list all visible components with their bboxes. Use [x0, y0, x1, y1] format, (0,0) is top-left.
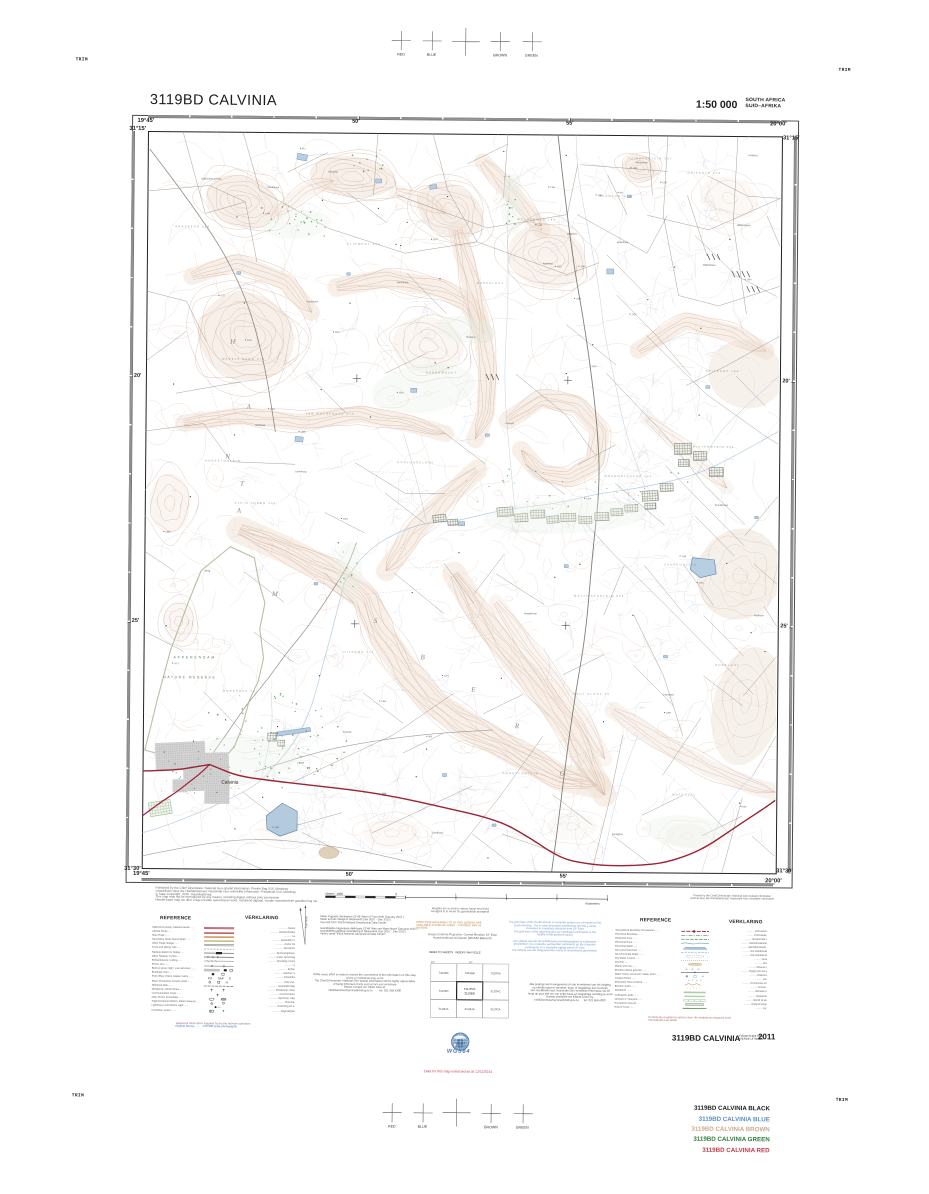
svg-text:1055: 1055 [581, 266, 587, 268]
svg-text:Wielsdraai: Wielsdraai [617, 241, 629, 244]
svg-text:1386: 1386 [576, 299, 582, 301]
svg-text:19°: 19° [431, 960, 435, 963]
svg-text:DORSHOEK 52: DORSHOEK 52 [224, 689, 257, 693]
svg-text:Kransfontein: Kransfontein [715, 504, 729, 507]
svg-text:Wilgebos: Wilgebos [568, 233, 579, 236]
svg-text:1174: 1174 [433, 239, 439, 241]
svg-text:Hoogtekraal: Hoogtekraal [524, 613, 537, 616]
svg-text:Lokenburg: Lokenburg [295, 471, 307, 474]
svg-text:Sandkraal: Sandkraal [432, 832, 443, 835]
svg-text:1264: 1264 [699, 583, 705, 585]
svg-text:KLEIN TOREN 569: KLEIN TOREN 569 [235, 501, 277, 505]
svg-text:Toekomst: Toekomst [328, 171, 339, 174]
svg-text:1001: 1001 [343, 519, 349, 521]
svg-text:1329: 1329 [274, 733, 280, 735]
svg-text:Bulshoek: Bulshoek [256, 424, 267, 427]
svg-text:1161: 1161 [444, 676, 450, 678]
svg-text:996: 996 [429, 737, 433, 739]
svg-text:A: A [246, 403, 252, 411]
svg-text:Uitsig: Uitsig [205, 570, 212, 573]
svg-text:1089: 1089 [666, 713, 672, 715]
svg-text:1030: 1030 [747, 280, 753, 282]
svg-text:BOSKLOOF: BOSKLOOF [716, 663, 741, 667]
svg-text:AKKERENDAM: AKKERENDAM [174, 656, 217, 660]
svg-text:Oorkant: Oorkant [506, 422, 515, 425]
svg-text:G: G [560, 770, 565, 778]
svg-text:1471: 1471 [174, 663, 180, 665]
svg-text:1: 1 [454, 893, 456, 897]
svg-text:GRASBERG 136: GRASBERG 136 [176, 225, 211, 229]
svg-text:Middelplaas: Middelplaas [703, 264, 717, 267]
svg-text:WABELS BERG 474: WABELS BERG 474 [222, 357, 265, 361]
svg-text:SAP: SAP [218, 977, 224, 980]
svg-text:PO: PO [208, 977, 213, 980]
svg-text:KLIPWERF 102: KLIPWERF 102 [347, 242, 381, 246]
svg-text:Elandsvlei: Elandsvlei [664, 694, 675, 697]
svg-text:0: 0 [395, 892, 397, 896]
svg-text:1047: 1047 [592, 366, 598, 368]
svg-text:912: 912 [302, 149, 306, 151]
svg-text:Vaalhoek: Vaalhoek [754, 614, 765, 617]
svg-text:VAN ROFREHOEK 576: VAN ROFREHOEK 576 [306, 412, 355, 416]
svg-text:HOEKSFONTEIN: HOEKSFONTEIN [206, 459, 242, 463]
svg-text:GROOTFONTEIN: GROOTFONTEIN [503, 771, 539, 775]
svg-text:Tuinplaat: Tuinplaat [748, 154, 758, 157]
svg-text:Doringbos: Doringbos [612, 833, 624, 836]
svg-text:3: 3 [555, 894, 557, 898]
svg-text:E: E [471, 686, 477, 694]
svg-text:Metres 1000: Metres 1000 [325, 892, 343, 896]
svg-text:Perdekraal: Perdekraal [268, 186, 280, 189]
svg-text:NATURE RESERVE: NATURE RESERVE [164, 675, 217, 679]
svg-text:1407: 1407 [270, 409, 276, 411]
svg-text:4: 4 [606, 894, 608, 898]
svg-text:1109: 1109 [682, 556, 688, 558]
svg-text:1497: 1497 [275, 827, 281, 829]
svg-text:Rooiberg: Rooiberg [543, 263, 553, 266]
svg-text:2: 2 [505, 893, 507, 897]
svg-text:ZUURFONTEIN: ZUURFONTEIN [665, 563, 698, 567]
svg-text:TUINSFONTEIN 567: TUINSFONTEIN 567 [628, 156, 673, 160]
svg-text:SOUT KLOOF 56: SOUT KLOOF 56 [574, 692, 611, 696]
svg-text:RIETFONTEIN 111: RIETFONTEIN 111 [694, 445, 735, 449]
svg-text:Vredehoek: Vredehoek [307, 301, 319, 304]
svg-text:S: S [374, 617, 378, 625]
svg-text:H: H [230, 338, 237, 346]
svg-text:1464: 1464 [382, 701, 388, 703]
svg-text:1097: 1097 [663, 183, 669, 185]
svg-text:Klipfontein se Puts: Klipfontein se Puts [202, 178, 223, 181]
svg-text:1324: 1324 [632, 314, 638, 316]
svg-text:UITKOMS 571: UITKOMS 571 [344, 650, 375, 654]
svg-text:3119BB: 3119BB [465, 971, 475, 975]
svg-text:1394: 1394 [551, 187, 557, 189]
svg-text:BLOMFONTEIN: BLOMFONTEIN [600, 194, 633, 198]
svg-text:Nuwerus: Nuwerus [467, 336, 477, 339]
svg-text:Varsfontein: Varsfontein [397, 281, 410, 284]
svg-text:1177: 1177 [221, 296, 227, 298]
svg-text:H: H [225, 981, 227, 984]
svg-text:1243: 1243 [633, 168, 639, 170]
svg-text:RHENOSTERKOP 545: RHENOSTERKOP 545 [605, 474, 652, 478]
svg-text:Welverdiend: Welverdiend [738, 224, 752, 227]
svg-text:1386: 1386 [301, 432, 307, 434]
svg-text:Soetvlei: Soetvlei [343, 731, 352, 734]
svg-text:Kilometres: Kilometres [585, 902, 600, 906]
svg-text:True North: True North [304, 915, 308, 928]
svg-text:969: 969 [743, 807, 747, 809]
svg-text:1446: 1446 [265, 213, 271, 215]
svg-text:DROEKLOOF: DROEKLOOF [477, 281, 505, 285]
svg-text:1119: 1119 [335, 332, 340, 334]
svg-text:DRIEKOLK 114: DRIEKOLK 114 [688, 171, 722, 175]
svg-text:1359: 1359 [166, 532, 172, 534]
svg-text:BRANDWACHT: BRANDWACHT [426, 371, 457, 375]
svg-text:T: T [240, 480, 245, 488]
svg-text:WELGEMOED 143: WELGEMOED 143 [518, 217, 557, 221]
svg-text:1070: 1070 [399, 393, 405, 395]
svg-text:R: R [514, 722, 520, 730]
svg-text:1138: 1138 [557, 267, 563, 269]
svg-text:B: B [421, 654, 426, 662]
svg-text:1376: 1376 [247, 340, 253, 342]
svg-text:WATERVAL: WATERVAL [673, 793, 697, 797]
svg-text:3120AA: 3120AA [491, 971, 501, 975]
svg-text:MATJIESFONTEIN 553: MATJIESFONTEIN 553 [574, 594, 624, 598]
svg-text:20°: 20° [469, 960, 473, 964]
svg-text:M: M [271, 590, 279, 598]
svg-text:A: A [236, 507, 242, 515]
svg-text:Ravenskop: Ravenskop [636, 161, 649, 164]
svg-text:1178: 1178 [587, 499, 593, 501]
svg-text:SPITSKOP 184: SPITSKOP 184 [706, 369, 740, 373]
svg-text:OORLOGSKLOOF: OORLOGSKLOOF [398, 460, 435, 464]
svg-text:Calvinia: Calvinia [222, 780, 239, 786]
svg-text:1257: 1257 [538, 225, 544, 227]
svg-text:1269: 1269 [598, 195, 604, 197]
